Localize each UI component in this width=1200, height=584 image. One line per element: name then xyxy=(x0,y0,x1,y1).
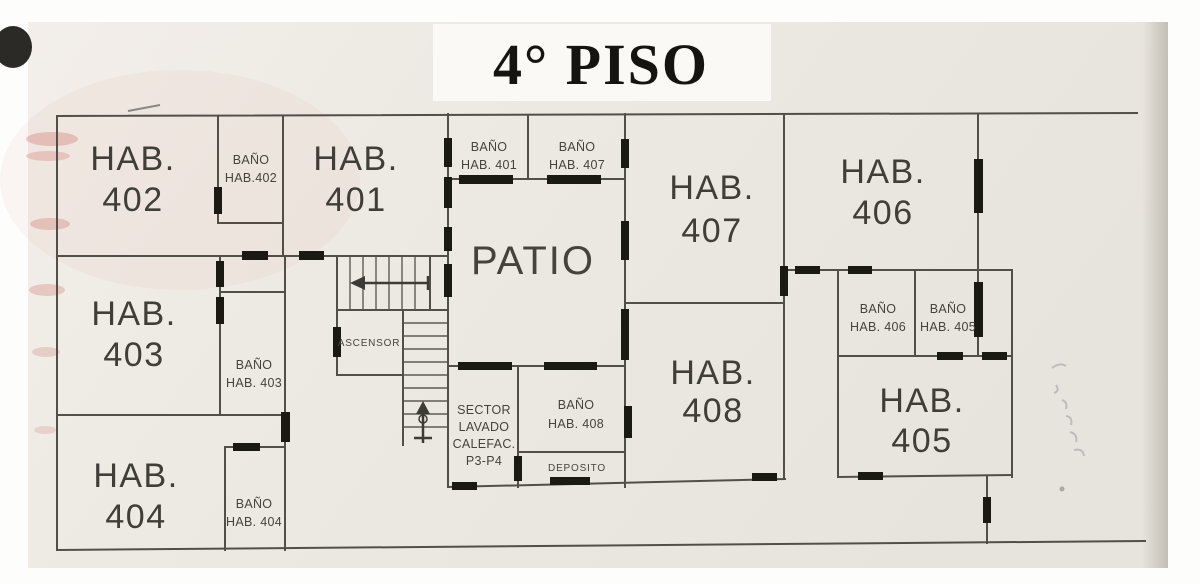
door-marker xyxy=(550,477,590,485)
room-label: BAÑO xyxy=(558,398,595,412)
paper-edge-shadow xyxy=(1142,22,1168,568)
door-marker xyxy=(458,362,512,370)
door-marker xyxy=(216,261,224,287)
door-marker xyxy=(858,472,883,480)
door-marker xyxy=(281,412,290,442)
room-label: HAB. xyxy=(669,169,754,207)
door-marker xyxy=(624,406,632,438)
door-marker xyxy=(752,473,777,481)
room-label: HAB. xyxy=(670,354,755,392)
room-label: P3-P4 xyxy=(466,454,502,468)
door-marker xyxy=(444,177,452,208)
door-marker xyxy=(974,159,983,213)
room-label: HAB.402 xyxy=(225,171,277,185)
door-marker xyxy=(795,266,820,274)
room-label: HAB. 401 xyxy=(461,158,517,172)
door-marker xyxy=(452,482,477,490)
door-marker xyxy=(982,352,1007,360)
door-marker xyxy=(444,264,452,297)
room-number: 404 xyxy=(105,498,166,536)
room-label: ASCENSOR xyxy=(338,338,401,349)
room-label: SECTOR xyxy=(457,403,511,417)
door-marker xyxy=(848,266,872,274)
room-label: BAÑO xyxy=(930,302,967,316)
door-marker xyxy=(233,443,260,451)
door-marker xyxy=(242,251,268,260)
room-label: HAB. 404 xyxy=(226,515,282,529)
room-label: BAÑO xyxy=(236,358,273,372)
page-title: 4° PISO xyxy=(493,32,709,97)
room-number: 401 xyxy=(325,181,386,219)
floor-plan-photo: HAB. 402 BAÑO HAB.402 HAB. 401 BAÑO HAB.… xyxy=(0,0,1200,584)
door-marker xyxy=(937,352,963,360)
room-ascensor: ASCENSOR xyxy=(338,338,401,349)
room-label: HAB. 405 xyxy=(920,320,976,334)
room-patio: PATIO xyxy=(471,239,595,283)
door-marker xyxy=(444,138,452,167)
room-label: BAÑO xyxy=(860,302,897,316)
room-label: HAB. 408 xyxy=(548,417,604,431)
door-marker xyxy=(983,497,991,523)
room-label: HAB. xyxy=(93,457,178,495)
door-marker xyxy=(216,297,224,324)
room-label: HAB. xyxy=(91,295,176,333)
floor-title: 4° PISO xyxy=(433,24,771,101)
room-label: DEPOSITO xyxy=(548,463,606,474)
room-label: PATIO xyxy=(471,239,595,283)
room-label: BAÑO xyxy=(233,153,270,167)
door-marker xyxy=(621,221,629,260)
room-number: 406 xyxy=(852,194,913,232)
door-marker xyxy=(544,362,597,370)
room-number: 407 xyxy=(681,212,742,250)
room-label: HAB. 407 xyxy=(549,158,605,172)
room-label: HAB. 403 xyxy=(226,376,282,390)
floor-plan-svg: HAB. 402 BAÑO HAB.402 HAB. 401 BAÑO HAB.… xyxy=(0,0,1200,584)
room-deposito: DEPOSITO xyxy=(548,463,606,474)
door-marker xyxy=(780,266,788,296)
door-marker xyxy=(444,227,452,251)
room-label: HAB. xyxy=(90,140,175,178)
room-number: 405 xyxy=(891,422,952,460)
door-marker xyxy=(514,456,522,481)
room-number: 403 xyxy=(103,336,164,374)
door-marker xyxy=(547,175,601,184)
room-label: HAB. xyxy=(840,153,925,191)
door-marker xyxy=(299,251,324,260)
room-hab-408: HAB. 408 xyxy=(670,354,755,430)
room-label: HAB. xyxy=(313,140,398,178)
room-label: HAB. 406 xyxy=(850,320,906,334)
room-label: CALEFAC. xyxy=(453,437,516,451)
room-number: 402 xyxy=(102,181,163,219)
room-label: BAÑO xyxy=(236,497,273,511)
door-marker xyxy=(459,175,513,184)
door-marker xyxy=(214,187,222,214)
room-label: HAB. xyxy=(879,382,964,420)
room-label: BAÑO xyxy=(471,140,508,154)
room-label: BAÑO xyxy=(559,140,596,154)
door-marker xyxy=(621,139,629,168)
photo-blotch xyxy=(0,26,32,68)
room-number: 408 xyxy=(682,392,743,430)
room-label: LAVADO xyxy=(459,420,510,434)
door-marker xyxy=(621,309,629,360)
